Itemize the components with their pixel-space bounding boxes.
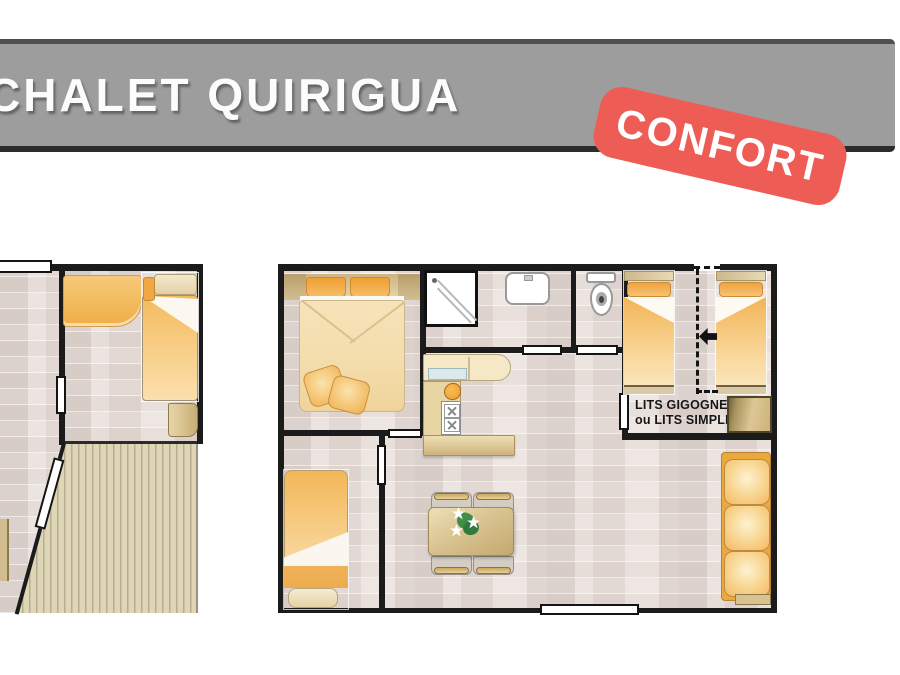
kids-partition-dashed-line bbox=[696, 269, 703, 394]
fruit-bowl bbox=[444, 383, 461, 400]
duvet-fold-line-right bbox=[349, 302, 404, 344]
kitchen-counter bbox=[423, 435, 515, 456]
kitchen-hob-unit bbox=[423, 381, 461, 436]
bed-pillow bbox=[288, 588, 338, 608]
page-title: CHALET QUIRIGUA bbox=[0, 44, 461, 146]
kitchen-sink bbox=[428, 368, 467, 380]
sofa-cushion bbox=[724, 459, 770, 505]
bedroom2-door-leaf bbox=[377, 445, 386, 485]
kids-room-bottom-wall bbox=[622, 433, 777, 440]
bathroom-door-leaf bbox=[522, 345, 562, 355]
washbasin-tap bbox=[524, 275, 533, 281]
burner-icon bbox=[444, 418, 460, 432]
bed-pillow bbox=[627, 282, 671, 297]
shower bbox=[424, 270, 478, 327]
bed-headboard bbox=[624, 271, 674, 281]
chair-backrest bbox=[434, 567, 469, 574]
entrance-bay-door bbox=[540, 604, 639, 615]
terrace-top-line bbox=[62, 441, 198, 444]
sofa-cushion bbox=[724, 551, 770, 597]
master-bedroom-door-leaf bbox=[388, 429, 422, 438]
corner-bench bbox=[63, 275, 142, 327]
chair-backrest bbox=[476, 493, 511, 500]
toilet-bowl-center bbox=[599, 296, 604, 303]
terrace-right-line bbox=[196, 444, 198, 613]
bed-pillow bbox=[154, 274, 197, 295]
bedroom2-right-wall-upper bbox=[379, 430, 385, 446]
left-plan-cabinet-sliver bbox=[0, 519, 9, 581]
bed-foot-band bbox=[284, 566, 348, 588]
left-plan-mid-wall-lower bbox=[59, 412, 65, 445]
sofa-3-seater bbox=[721, 452, 771, 601]
wardrobe-cabinet bbox=[727, 396, 772, 433]
duvet-fold-line-left bbox=[302, 300, 355, 342]
bed-headboard bbox=[716, 271, 766, 281]
sofa-side-table bbox=[735, 594, 771, 605]
single-bed-bedroom2 bbox=[284, 470, 348, 609]
main-bottom-wall bbox=[278, 608, 777, 613]
master-pillow-left bbox=[306, 277, 346, 298]
left-plan-window bbox=[0, 260, 52, 273]
left-plan-door-leaf bbox=[56, 376, 66, 414]
shower-door-line-1 bbox=[437, 280, 477, 322]
master-bedroom-bottom-wall bbox=[283, 430, 392, 436]
chair-backrest bbox=[476, 567, 511, 574]
page: CHALET QUIRIGUA CONFORT bbox=[0, 0, 900, 675]
chair bbox=[473, 556, 514, 575]
table-plant bbox=[448, 506, 486, 540]
bed-footboard bbox=[624, 385, 674, 394]
master-pillow-right bbox=[350, 277, 390, 298]
kids-single-bed-right bbox=[716, 271, 766, 394]
hob-appliance bbox=[441, 401, 461, 435]
chair-backrest bbox=[434, 493, 469, 500]
kitchen-bench bbox=[423, 354, 511, 381]
washbasin bbox=[505, 272, 550, 305]
wc-left-wall bbox=[571, 269, 576, 347]
wc-door-leaf bbox=[576, 345, 618, 355]
shower-door-line-2 bbox=[437, 288, 472, 324]
bed-pillow bbox=[719, 282, 763, 297]
kids-single-bed-left bbox=[624, 271, 674, 394]
burner-icon bbox=[444, 404, 460, 418]
toilet bbox=[584, 271, 620, 319]
single-bed-left-plan bbox=[142, 273, 198, 401]
bed-footboard bbox=[716, 385, 766, 394]
kids-room-door-leaf bbox=[619, 393, 629, 430]
chair bbox=[431, 556, 472, 575]
kids-partition-dash-bottom bbox=[696, 390, 718, 396]
sofa-cushion bbox=[724, 505, 770, 551]
bed-pillow-corner bbox=[143, 277, 155, 301]
kitchen-bench-seam bbox=[468, 357, 470, 380]
bedroom2-right-wall-lower bbox=[379, 484, 385, 610]
toilet-tank bbox=[586, 272, 616, 283]
bedside-table bbox=[168, 403, 198, 437]
